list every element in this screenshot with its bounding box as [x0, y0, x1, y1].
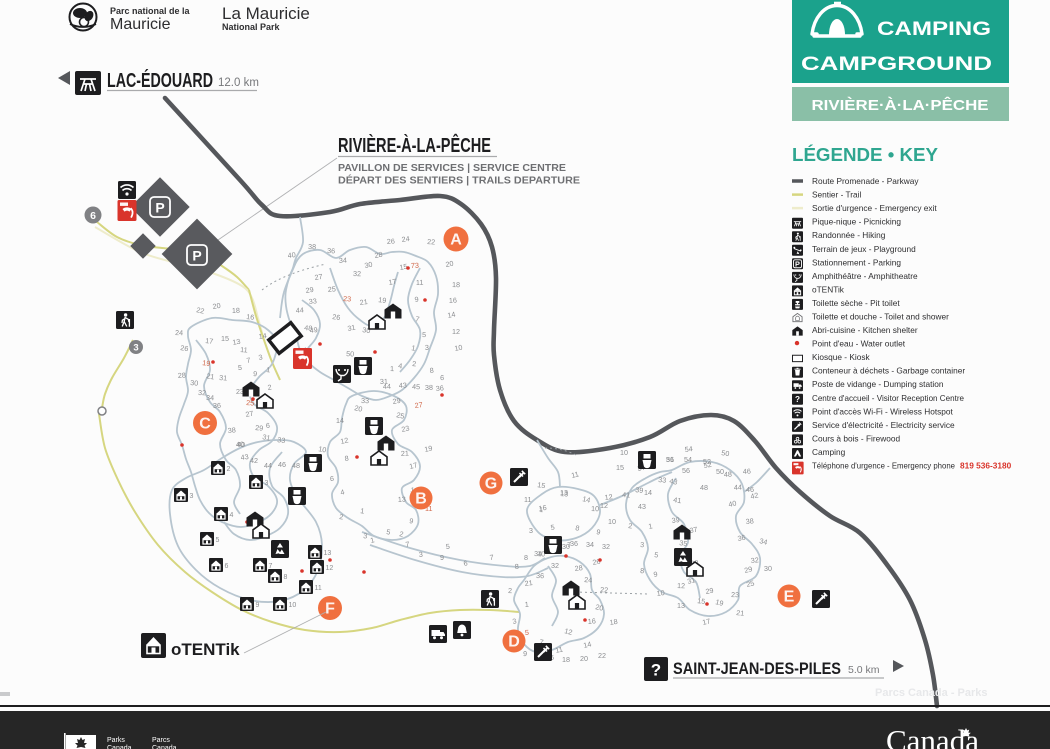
svg-text:5: 5 [422, 330, 426, 339]
svg-text:E: E [784, 589, 795, 606]
svg-text:14: 14 [258, 331, 267, 341]
svg-text:3: 3 [265, 480, 269, 487]
svg-text:22: 22 [600, 585, 609, 595]
svg-text:3: 3 [419, 550, 424, 559]
svg-text:7: 7 [405, 539, 411, 549]
svg-text:46: 46 [278, 460, 286, 469]
svg-text:30: 30 [562, 542, 570, 551]
svg-text:8: 8 [284, 574, 288, 581]
svg-text:Cours à bois - Firewood: Cours à bois - Firewood [812, 433, 900, 443]
svg-text:P: P [155, 200, 164, 216]
svg-text:Parcs: Parcs [152, 737, 170, 744]
svg-text:1: 1 [266, 365, 271, 374]
svg-text:17: 17 [388, 277, 397, 287]
svg-text:oTENTik: oTENTik [171, 640, 240, 659]
svg-text:3: 3 [512, 616, 518, 626]
svg-text:19: 19 [424, 443, 434, 453]
svg-text:44: 44 [734, 483, 742, 492]
svg-text:44: 44 [295, 305, 304, 315]
svg-text:29: 29 [705, 586, 714, 596]
svg-text:10: 10 [608, 517, 616, 526]
svg-text:23: 23 [731, 590, 739, 599]
svg-text:5: 5 [386, 527, 392, 537]
svg-text:34: 34 [759, 536, 769, 547]
svg-text:?: ? [651, 661, 661, 680]
svg-text:43: 43 [399, 380, 408, 390]
svg-text:31: 31 [686, 575, 696, 586]
svg-text:22: 22 [196, 305, 206, 315]
svg-text:43: 43 [669, 476, 679, 487]
svg-text:20: 20 [212, 301, 221, 311]
svg-text:11: 11 [524, 495, 531, 504]
svg-text:39: 39 [635, 485, 644, 495]
svg-text:46: 46 [743, 466, 752, 476]
svg-text:26: 26 [332, 312, 341, 322]
svg-text:50: 50 [716, 467, 724, 476]
svg-text:11: 11 [416, 278, 424, 287]
svg-text:27: 27 [314, 272, 323, 282]
svg-text:38: 38 [745, 516, 754, 526]
svg-text:13: 13 [677, 601, 685, 610]
svg-text:16: 16 [587, 616, 596, 626]
svg-text:41: 41 [622, 490, 631, 500]
svg-text:Point d'eau - Water outlet: Point d'eau - Water outlet [812, 339, 906, 349]
svg-text:21: 21 [736, 608, 745, 618]
svg-text:34: 34 [586, 540, 594, 549]
svg-text:30: 30 [764, 564, 772, 573]
svg-text:48: 48 [304, 323, 313, 333]
svg-text:27: 27 [245, 409, 255, 419]
svg-text:10: 10 [454, 343, 464, 353]
svg-text:8: 8 [344, 454, 349, 463]
svg-text:5: 5 [216, 537, 220, 544]
svg-text:Centre d'accueil - Visitor Rec: Centre d'accueil - Visitor Reception Cen… [812, 393, 964, 403]
svg-text:14: 14 [582, 494, 592, 504]
svg-text:P: P [192, 248, 201, 264]
svg-text:20: 20 [354, 403, 364, 414]
svg-text:11: 11 [554, 644, 563, 654]
svg-text:1: 1 [539, 505, 543, 514]
svg-text:10: 10 [620, 448, 628, 457]
svg-text:3: 3 [363, 531, 368, 540]
svg-text:Parks: Parks [107, 737, 125, 744]
svg-text:Point d'accès Wi-Fi - Wireless: Point d'accès Wi-Fi - Wireless Hotspot [812, 406, 954, 416]
svg-text:LAC-ÉDOUARD: LAC-ÉDOUARD [107, 69, 213, 92]
svg-text:56: 56 [682, 466, 690, 475]
svg-text:16: 16 [449, 296, 457, 305]
svg-text:32: 32 [353, 269, 361, 278]
svg-text:48: 48 [292, 461, 300, 470]
svg-text:33: 33 [658, 475, 667, 485]
svg-text:10: 10 [591, 504, 599, 513]
svg-text:PAVILLON DE SERVICES | SERVICE: PAVILLON DE SERVICES | SERVICE CENTRE [338, 163, 566, 174]
svg-text:36: 36 [570, 539, 578, 548]
svg-text:Route Promenade - Parkway: Route Promenade - Parkway [812, 176, 919, 186]
svg-text:33: 33 [308, 296, 317, 306]
svg-text:6: 6 [463, 558, 469, 568]
svg-text:1: 1 [360, 506, 365, 516]
svg-text:54: 54 [684, 455, 692, 464]
svg-text:26: 26 [387, 236, 396, 246]
svg-text:16: 16 [246, 312, 255, 322]
svg-text:56: 56 [666, 455, 674, 464]
svg-text:48: 48 [700, 483, 708, 492]
svg-text:Sortie d'urgence - Emergency e: Sortie d'urgence - Emergency exit [812, 203, 937, 213]
svg-text:9: 9 [409, 516, 414, 526]
svg-text:44: 44 [264, 461, 272, 470]
svg-text:28: 28 [178, 370, 187, 380]
svg-text:14: 14 [447, 310, 457, 320]
svg-text:17: 17 [408, 460, 418, 471]
svg-text:32: 32 [198, 388, 206, 397]
svg-text:48: 48 [724, 470, 732, 479]
svg-text:50: 50 [721, 448, 730, 458]
svg-text:4: 4 [230, 512, 234, 519]
svg-text:9: 9 [653, 569, 659, 579]
svg-text:C: C [199, 416, 211, 433]
svg-text:12: 12 [340, 435, 350, 445]
svg-text:43: 43 [240, 452, 249, 462]
svg-text:28: 28 [574, 563, 583, 573]
svg-text:30: 30 [190, 378, 199, 388]
svg-text:23: 23 [343, 294, 351, 303]
svg-text:15: 15 [616, 463, 624, 472]
svg-text:Amphithéâtre - Amphitheatre: Amphithéâtre - Amphitheatre [812, 271, 918, 281]
svg-text:1: 1 [524, 600, 529, 609]
svg-text:RIVIÈRE-À-LA-PÊCHE: RIVIÈRE-À-LA-PÊCHE [338, 133, 491, 157]
svg-text:9: 9 [414, 294, 419, 304]
svg-text:23: 23 [401, 423, 411, 433]
svg-text:5: 5 [446, 542, 451, 551]
svg-text:DÉPART DES SENTIERS | TRAILS D: DÉPART DES SENTIERS | TRAILS DEPARTURE [338, 174, 580, 187]
svg-text:Kiosque - Kiosk: Kiosque - Kiosk [812, 352, 870, 362]
svg-text:5: 5 [550, 522, 555, 532]
svg-text:9: 9 [256, 602, 260, 609]
svg-text:8: 8 [429, 366, 434, 375]
svg-text:La Mauricie: La Mauricie [222, 4, 310, 23]
svg-text:36: 36 [213, 401, 221, 410]
svg-text:CAMPGROUND: CAMPGROUND [801, 54, 992, 75]
svg-text:26: 26 [180, 343, 189, 353]
svg-text:21: 21 [359, 297, 368, 307]
svg-text:25: 25 [745, 578, 755, 589]
svg-text:Canada: Canada [107, 745, 132, 749]
svg-text:11: 11 [315, 585, 322, 592]
svg-text:12: 12 [564, 626, 574, 637]
svg-text:Service d'électricité - Electr: Service d'électricité - Electricity serv… [812, 420, 955, 430]
svg-text:1: 1 [390, 364, 394, 373]
svg-text:12: 12 [452, 327, 460, 336]
svg-text:40: 40 [287, 250, 296, 260]
svg-text:12.0 km: 12.0 km [218, 77, 259, 89]
svg-text:15: 15 [537, 480, 546, 490]
svg-text:32: 32 [602, 542, 610, 551]
svg-text:21: 21 [401, 449, 409, 458]
svg-text:38: 38 [308, 242, 316, 251]
svg-text:28: 28 [374, 250, 383, 260]
svg-text:54: 54 [684, 444, 693, 454]
svg-text:21: 21 [524, 578, 533, 588]
svg-text:29: 29 [305, 285, 314, 295]
svg-text:20: 20 [595, 602, 605, 613]
svg-text:24: 24 [584, 575, 593, 585]
svg-text:10: 10 [318, 444, 328, 454]
svg-text:6: 6 [330, 474, 334, 483]
svg-text:29: 29 [743, 564, 753, 575]
svg-text:10: 10 [289, 602, 297, 609]
svg-text:12: 12 [326, 565, 334, 572]
svg-text:34: 34 [339, 256, 347, 265]
svg-text:39: 39 [671, 515, 680, 525]
svg-text:33: 33 [277, 435, 286, 445]
svg-text:RIVIÈRE·À·LA·PÊCHE: RIVIÈRE·À·LA·PÊCHE [812, 96, 989, 114]
svg-text:19: 19 [378, 295, 387, 305]
svg-text:Sentier - Trail: Sentier - Trail [812, 190, 861, 200]
svg-text:9: 9 [253, 369, 258, 378]
svg-text:8: 8 [640, 566, 645, 575]
svg-text:3: 3 [425, 343, 429, 352]
svg-text:36: 36 [737, 533, 746, 543]
svg-text:22: 22 [427, 237, 436, 247]
svg-text:3: 3 [190, 493, 194, 500]
svg-text:Abri-cuisine - Kitchen shelter: Abri-cuisine - Kitchen shelter [812, 325, 918, 335]
svg-text:7: 7 [269, 563, 273, 570]
svg-text:Parcs Canada - Parks: Parcs Canada - Parks [875, 687, 988, 699]
svg-text:36: 36 [327, 246, 335, 255]
svg-text:13: 13 [398, 494, 407, 504]
svg-text:8: 8 [524, 553, 528, 562]
svg-text:31: 31 [219, 373, 228, 383]
svg-text:G: G [485, 476, 497, 493]
svg-text:43: 43 [638, 502, 646, 511]
svg-text:2: 2 [227, 466, 231, 473]
svg-text:D: D [508, 634, 520, 651]
svg-text:F: F [325, 601, 335, 618]
svg-text:13: 13 [560, 488, 568, 497]
svg-text:14: 14 [336, 416, 344, 425]
svg-text:Conteneur à déchets - Garbage: Conteneur à déchets - Garbage container [812, 366, 965, 376]
svg-text:46: 46 [746, 485, 754, 494]
svg-text:Parc national de la: Parc national de la [110, 6, 191, 16]
svg-text:19: 19 [715, 597, 725, 608]
svg-text:29: 29 [255, 423, 264, 433]
svg-text:SAINT-JEAN-DES-PILES: SAINT-JEAN-DES-PILES [673, 659, 841, 678]
svg-text:11: 11 [570, 469, 579, 480]
svg-text:8: 8 [515, 562, 520, 571]
svg-text:15: 15 [697, 596, 706, 606]
svg-text:7: 7 [489, 553, 494, 562]
svg-text:18: 18 [452, 280, 460, 289]
svg-text:Randonnée - Hiking: Randonnée - Hiking [812, 230, 886, 240]
svg-text:19: 19 [202, 358, 211, 368]
svg-text:Mauricie: Mauricie [110, 16, 171, 33]
svg-text:14: 14 [644, 488, 652, 497]
svg-text:6: 6 [440, 373, 444, 382]
svg-text:24: 24 [401, 234, 410, 244]
svg-text:9: 9 [523, 649, 527, 658]
svg-text:5: 5 [654, 550, 659, 559]
svg-text:Poste de vidange - Dumping sta: Poste de vidange - Dumping station [812, 379, 944, 389]
svg-text:50: 50 [346, 349, 355, 359]
svg-text:45: 45 [412, 382, 420, 391]
svg-text:15: 15 [221, 334, 229, 343]
svg-text:40: 40 [237, 440, 245, 449]
svg-text:52: 52 [703, 457, 711, 466]
svg-text:42: 42 [250, 456, 258, 465]
svg-text:B: B [415, 491, 427, 508]
svg-text:25: 25 [327, 284, 336, 294]
svg-text:6: 6 [225, 563, 229, 570]
svg-text:40: 40 [728, 498, 738, 508]
svg-text:24: 24 [175, 328, 183, 337]
svg-text:9: 9 [440, 553, 444, 562]
svg-text:Toilette et douche - Toilet an: Toilette et douche - Toilet and shower [812, 312, 949, 322]
svg-text:8: 8 [575, 523, 581, 533]
svg-text:36: 36 [435, 383, 444, 393]
svg-text:6: 6 [266, 421, 270, 430]
svg-text:22: 22 [598, 651, 606, 660]
svg-text:LÉGENDE • KEY: LÉGENDE • KEY [792, 144, 938, 165]
svg-text:3: 3 [133, 343, 138, 354]
svg-text:14: 14 [582, 639, 592, 650]
svg-text:Téléphone d'urgence - Emergenc: Téléphone d'urgence - Emergency phone [812, 461, 955, 471]
svg-text:2: 2 [267, 382, 272, 392]
svg-text:38: 38 [227, 425, 236, 435]
svg-text:5: 5 [238, 363, 242, 372]
svg-text:29: 29 [392, 396, 401, 406]
svg-text:41: 41 [673, 495, 682, 505]
svg-text:Stationnement - Parking: Stationnement - Parking [812, 257, 901, 267]
svg-text:12: 12 [600, 501, 608, 510]
svg-text:11: 11 [240, 345, 248, 354]
svg-text:6: 6 [90, 210, 96, 222]
svg-text:18: 18 [609, 617, 618, 627]
svg-text:20: 20 [445, 259, 454, 269]
svg-text:5: 5 [525, 628, 529, 637]
svg-text:38: 38 [425, 383, 433, 392]
svg-text:3: 3 [258, 352, 264, 362]
svg-text:CAMPING: CAMPING [877, 19, 991, 40]
svg-text:Terrain de jeux - Playground: Terrain de jeux - Playground [812, 244, 916, 254]
svg-text:36: 36 [536, 571, 544, 580]
svg-text:7: 7 [246, 355, 252, 365]
svg-text:2: 2 [628, 521, 633, 530]
svg-text:819 536-3180: 819 536-3180 [960, 461, 1012, 471]
svg-text:10: 10 [656, 588, 665, 598]
svg-text:12: 12 [677, 581, 685, 590]
svg-text:20: 20 [580, 654, 588, 663]
svg-text:35: 35 [679, 538, 688, 548]
svg-text:P: P [795, 260, 800, 269]
svg-text:32: 32 [551, 561, 559, 570]
svg-text:18: 18 [232, 306, 240, 315]
svg-text:7: 7 [415, 314, 421, 324]
svg-text:32: 32 [750, 555, 759, 565]
svg-text:Camping: Camping [812, 447, 846, 457]
svg-text:4: 4 [339, 487, 345, 497]
svg-text:18: 18 [562, 655, 570, 664]
svg-text:17: 17 [701, 616, 711, 627]
svg-text:Pique-nique - Picnicking: Pique-nique - Picnicking [812, 217, 901, 227]
svg-text:Toilette sèche - Pit toilet: Toilette sèche - Pit toilet [812, 298, 900, 308]
svg-text:13: 13 [324, 550, 332, 557]
svg-text:27: 27 [414, 400, 423, 410]
svg-text:National Park: National Park [222, 22, 281, 32]
svg-text:9: 9 [596, 527, 602, 537]
svg-text:2: 2 [339, 512, 344, 521]
svg-text:Canada: Canada [152, 745, 177, 749]
svg-text:30: 30 [364, 260, 374, 270]
svg-text:2: 2 [412, 359, 417, 368]
svg-text:oTENTik: oTENTik [812, 284, 845, 294]
svg-text:2: 2 [508, 586, 512, 595]
svg-text:31: 31 [347, 323, 357, 333]
svg-text:A: A [450, 232, 462, 249]
svg-text:3: 3 [640, 540, 645, 549]
svg-text:73: 73 [411, 261, 419, 270]
svg-text:3: 3 [529, 526, 533, 535]
svg-text:5.0 km: 5.0 km [848, 664, 880, 676]
svg-text:1: 1 [648, 521, 654, 531]
svg-text:17: 17 [205, 336, 214, 346]
svg-text:21: 21 [206, 371, 216, 381]
svg-text:31: 31 [380, 377, 388, 386]
